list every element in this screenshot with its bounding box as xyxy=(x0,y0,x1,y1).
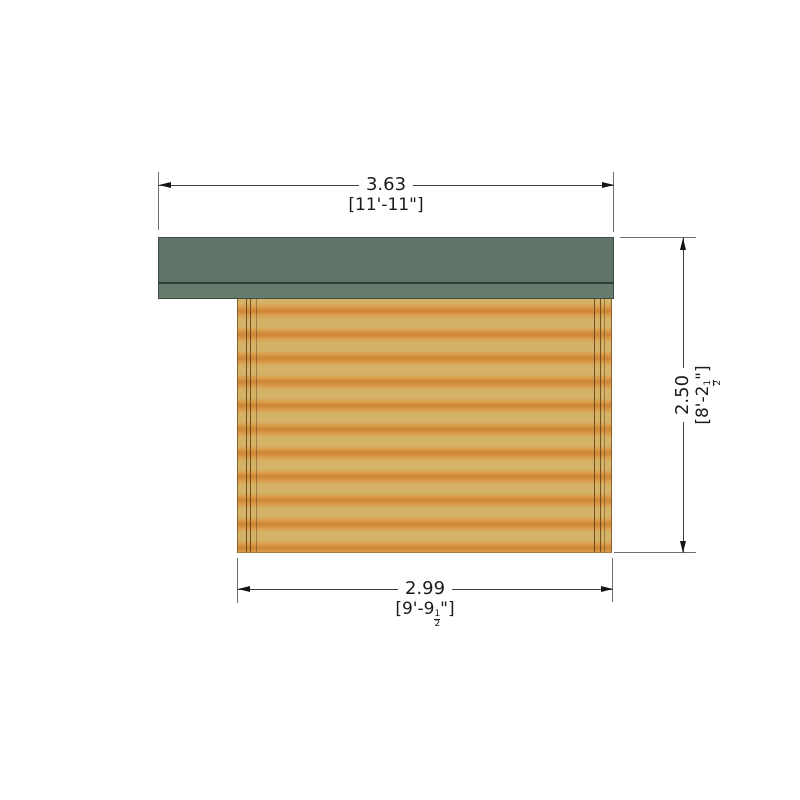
wall-cladding xyxy=(237,299,612,553)
corner-post-left-line xyxy=(250,299,251,552)
corner-post-right-line xyxy=(604,299,605,552)
dim-arrow-left xyxy=(238,586,250,592)
corner-post-left-line xyxy=(256,299,257,552)
extension-line xyxy=(158,172,159,230)
corner-post-left-line xyxy=(246,299,247,552)
roof-fascia xyxy=(159,282,613,298)
dim-arrow-right xyxy=(601,586,613,592)
dimension-right-label: 2.50 [8'-212"] xyxy=(673,335,715,455)
extension-line xyxy=(612,558,613,602)
dim-arrow-up xyxy=(680,238,686,250)
dim-arrow-down xyxy=(680,541,686,553)
dimension-top-metric: 3.63 xyxy=(359,175,413,195)
corner-post-right-line xyxy=(594,299,595,552)
fraction: 12 xyxy=(704,380,724,386)
dimension-top-imperial: [11'-11"] xyxy=(344,195,427,216)
roof-panel xyxy=(158,237,614,299)
elevation-drawing-canvas: 3.63 [11'-11"] 2.50 [8'-212"] 2.99 [9'-9… xyxy=(0,0,800,800)
dimension-top-label: 3.63 [11'-11"] xyxy=(316,175,456,216)
extension-line xyxy=(613,172,614,232)
dimension-right-imperial: [8'-212"] xyxy=(693,361,724,428)
extension-line xyxy=(237,558,238,603)
dimension-bottom-metric: 2.99 xyxy=(398,579,452,599)
dimension-bottom-imperial: [9'-912"] xyxy=(391,599,458,630)
corner-post-right-line xyxy=(600,299,601,552)
dimension-bottom-label: 2.99 [9'-912"] xyxy=(355,579,495,630)
dim-arrow-right xyxy=(602,182,614,188)
dim-arrow-left xyxy=(159,182,171,188)
dimension-right-metric: 2.50 xyxy=(673,368,693,422)
